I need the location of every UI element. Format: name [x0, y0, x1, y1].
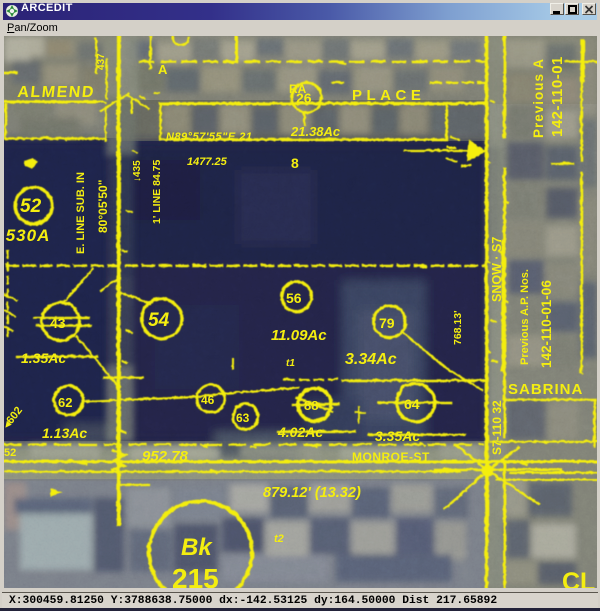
svg-text:S7-110 32: S7-110 32	[490, 400, 504, 455]
svg-text:80°05'50": 80°05'50"	[96, 180, 110, 233]
svg-text:1.13Ac: 1.13Ac	[42, 425, 87, 441]
svg-text:1477.25: 1477.25	[187, 156, 228, 168]
svg-text:8: 8	[291, 155, 299, 171]
svg-text:t1: t1	[286, 358, 295, 369]
svg-text:SABRINA: SABRINA	[508, 381, 583, 398]
svg-text:879.12' (13.32): 879.12' (13.32)	[263, 485, 361, 501]
svg-text:E. LINE SUB. IN: E. LINE SUB. IN	[75, 172, 87, 254]
svg-text:52: 52	[4, 447, 16, 459]
svg-text:t2: t2	[274, 533, 284, 545]
svg-text:46: 46	[201, 393, 215, 407]
svg-text:Bk: Bk	[181, 534, 213, 561]
svg-text:88: 88	[304, 398, 318, 413]
svg-text:56: 56	[286, 290, 302, 306]
svg-text:MONROE-ST: MONROE-ST	[352, 450, 430, 464]
svg-text:.530A: .530A	[4, 226, 50, 245]
svg-text:Previous A: Previous A	[531, 58, 546, 138]
svg-text:142-110-01-06: 142-110-01-06	[539, 280, 554, 368]
svg-text:11.09Ac: 11.09Ac	[271, 327, 327, 344]
svg-text:768.13': 768.13'	[452, 310, 464, 345]
svg-text:79: 79	[379, 315, 395, 331]
svg-text:1' LINE 84.75: 1' LINE 84.75	[151, 159, 163, 224]
svg-text:43: 43	[50, 315, 66, 331]
svg-text:52: 52	[20, 196, 42, 217]
svg-text:4.02Ac: 4.02Ac	[277, 424, 323, 440]
svg-text:64: 64	[404, 396, 420, 412]
svg-text:CL: CL	[562, 568, 595, 588]
svg-text:63: 63	[236, 411, 250, 425]
svg-text:A: A	[158, 62, 168, 77]
svg-text:952.78: 952.78	[142, 448, 189, 465]
svg-text:142-110-01: 142-110-01	[549, 56, 566, 137]
svg-text:PLACE: PLACE	[352, 87, 425, 104]
svg-text:54: 54	[148, 310, 170, 331]
svg-text:1.35Ac: 1.35Ac	[21, 350, 66, 366]
svg-text:26: 26	[296, 90, 312, 106]
svg-text:215: 215	[172, 563, 219, 588]
svg-text:62: 62	[58, 395, 72, 410]
svg-text:21.38Ac: 21.38Ac	[290, 124, 341, 139]
svg-text:SNOW · S7: SNOW · S7	[490, 237, 504, 302]
svg-text:3.34Ac: 3.34Ac	[345, 351, 397, 368]
svg-text:N89°57'55"E 21: N89°57'55"E 21	[166, 131, 253, 143]
svg-text:3.35Ac: 3.35Ac	[375, 428, 420, 444]
svg-text:↓435: ↓435	[132, 160, 143, 182]
svg-text:437: 437	[96, 53, 107, 70]
svg-text:ALMEND: ALMEND	[17, 83, 96, 101]
svg-text:Previous A.P. Nos.: Previous A.P. Nos.	[519, 269, 531, 365]
